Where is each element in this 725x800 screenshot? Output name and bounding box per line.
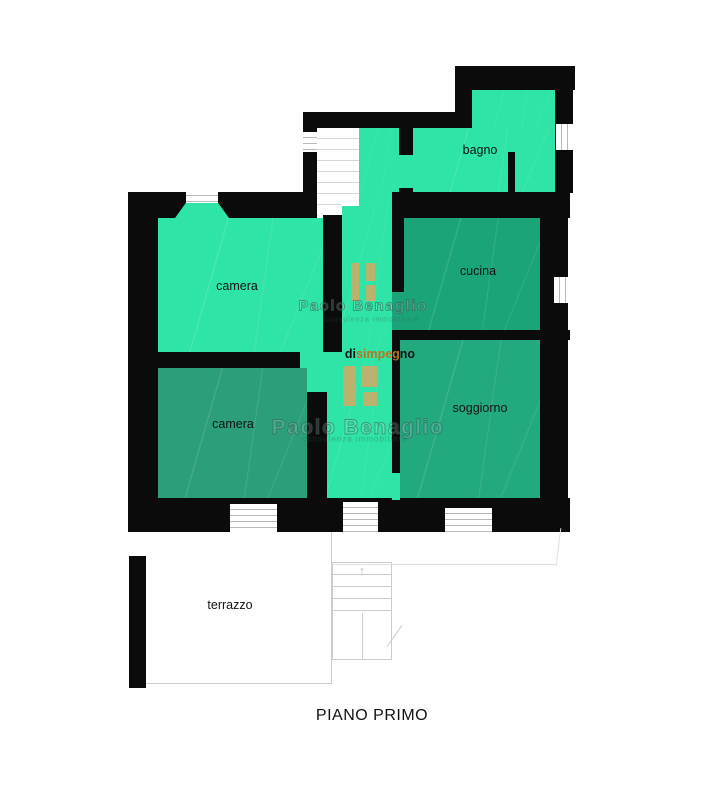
lower-floor-outline-h — [331, 564, 557, 565]
wall-corridor-left-upper — [323, 215, 342, 352]
disimpegno-part-3: no — [400, 347, 415, 361]
room-label-soggiorno: soggiorno — [453, 401, 508, 415]
room-bagno-upper-fill — [472, 90, 555, 128]
wall-cucina-left — [392, 218, 404, 292]
wall-terrazzo-west — [129, 556, 146, 688]
room-label-camera-bottom: camera — [212, 417, 254, 431]
window-bagno-east — [556, 124, 573, 150]
door-soggiorno — [392, 473, 400, 500]
window-cucina-east — [554, 277, 570, 303]
room-label-camera-top: camera — [216, 279, 258, 293]
wall-bagno-stub — [508, 152, 515, 193]
disimpegno-part-1: di — [345, 347, 356, 361]
door-camera-top — [300, 352, 342, 368]
room-bagno-fill — [413, 128, 555, 193]
door-camera-bottom — [307, 368, 327, 392]
wall-east — [540, 218, 568, 532]
wall-north-right — [392, 192, 570, 218]
lower-floor-outline-diag — [556, 528, 562, 566]
plan-title: PIANO PRIMO — [316, 707, 428, 725]
wall-corridor-left-lower — [307, 392, 327, 500]
stair-diagonal-line — [387, 625, 403, 647]
watermark-tagline-upper: consulenza immobiliare — [324, 317, 419, 324]
door-south-corridor — [343, 502, 378, 532]
disimpegno-part-2: simpeg — [356, 347, 400, 361]
window-south-camera — [230, 504, 277, 532]
room-label-cucina: cucina — [460, 264, 496, 278]
window-camera-top — [186, 190, 218, 203]
watermark-tagline-lower: consulenza immobiliare — [302, 435, 408, 444]
wardrobe-lower-left — [343, 366, 356, 406]
wardrobe-upper-right-a — [366, 263, 375, 281]
watermark-name-upper: Paolo Benaglio — [298, 298, 427, 315]
stairwell-lower: ↑ — [332, 562, 392, 660]
room-label-bagno: bagno — [463, 143, 498, 157]
wall-bagno-top — [455, 66, 575, 90]
wall-top-extension-top — [303, 112, 472, 128]
window-south-soggiorno — [445, 508, 492, 532]
stairwell-upper — [317, 128, 359, 216]
floorplan-canvas: ↑ camera bagno cucina camera disimpegno … — [0, 0, 725, 800]
wall-between-cameras — [145, 352, 300, 368]
cabinet-lower-small — [363, 392, 377, 406]
wardrobe-upper-left — [351, 263, 359, 301]
wardrobe-lower-right — [361, 366, 377, 387]
stair-divider-line — [362, 613, 363, 659]
room-label-terrazzo: terrazzo — [207, 598, 252, 612]
window-stairwell-left — [303, 132, 317, 152]
room-label-disimpegno: disimpegno — [345, 347, 415, 361]
wall-bagno-left-upper — [455, 90, 472, 128]
door-bagno — [395, 155, 415, 188]
stairs-up-arrow-icon: ↑ — [333, 564, 391, 577]
